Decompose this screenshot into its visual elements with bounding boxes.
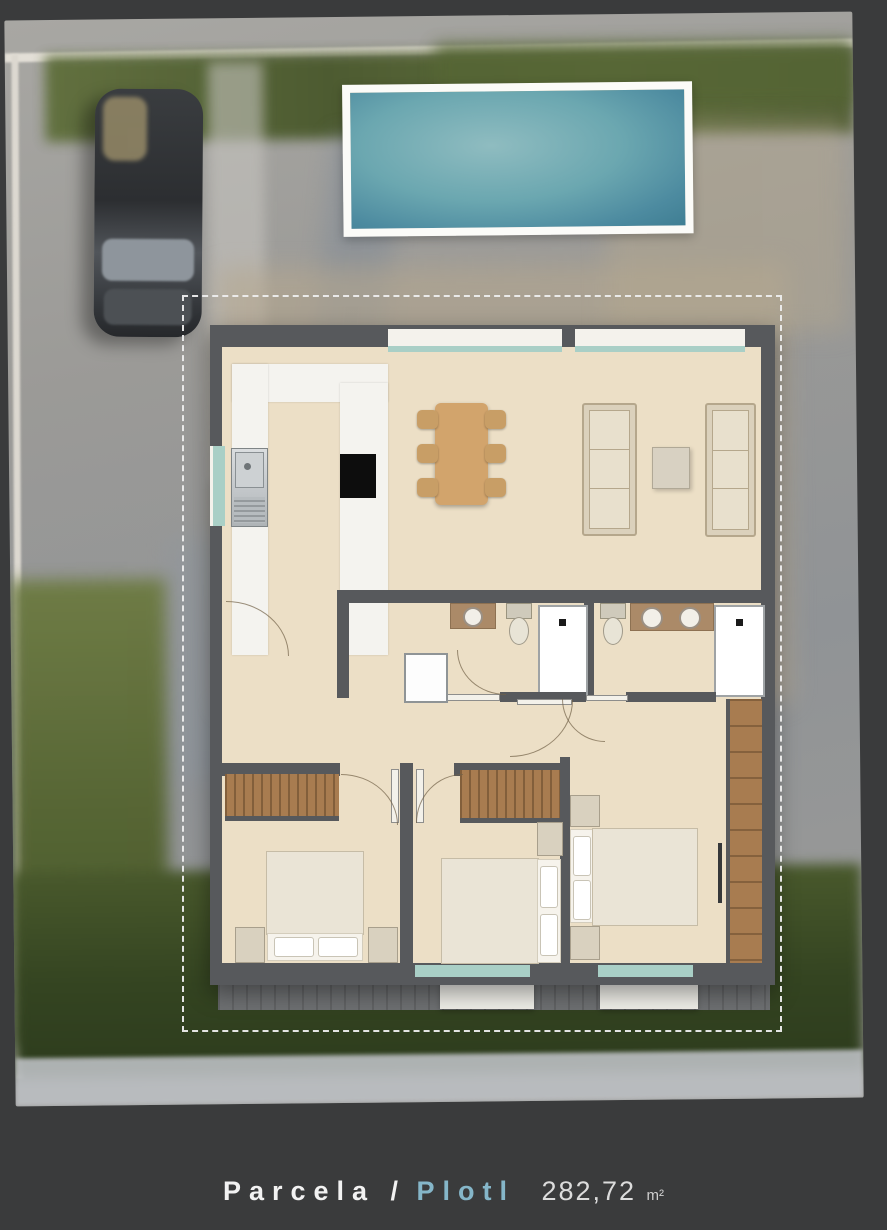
caption: Parcela / Plotl 282,72 m² — [0, 1176, 887, 1207]
caption-primary: Parcela / — [223, 1176, 406, 1206]
car-cover-patch — [103, 97, 147, 161]
caption-secondary: Plotl — [417, 1176, 516, 1206]
plot-area-unit: m² — [647, 1187, 665, 1204]
road-bottom — [15, 1050, 863, 1107]
plot-area-value: 282,72 — [541, 1176, 636, 1206]
swimming-pool — [342, 81, 694, 237]
page: Parcela / Plotl 282,72 m² — [0, 0, 887, 1230]
plot-boundary — [182, 295, 782, 1032]
car-windshield — [102, 239, 194, 282]
car-hood — [104, 289, 192, 326]
